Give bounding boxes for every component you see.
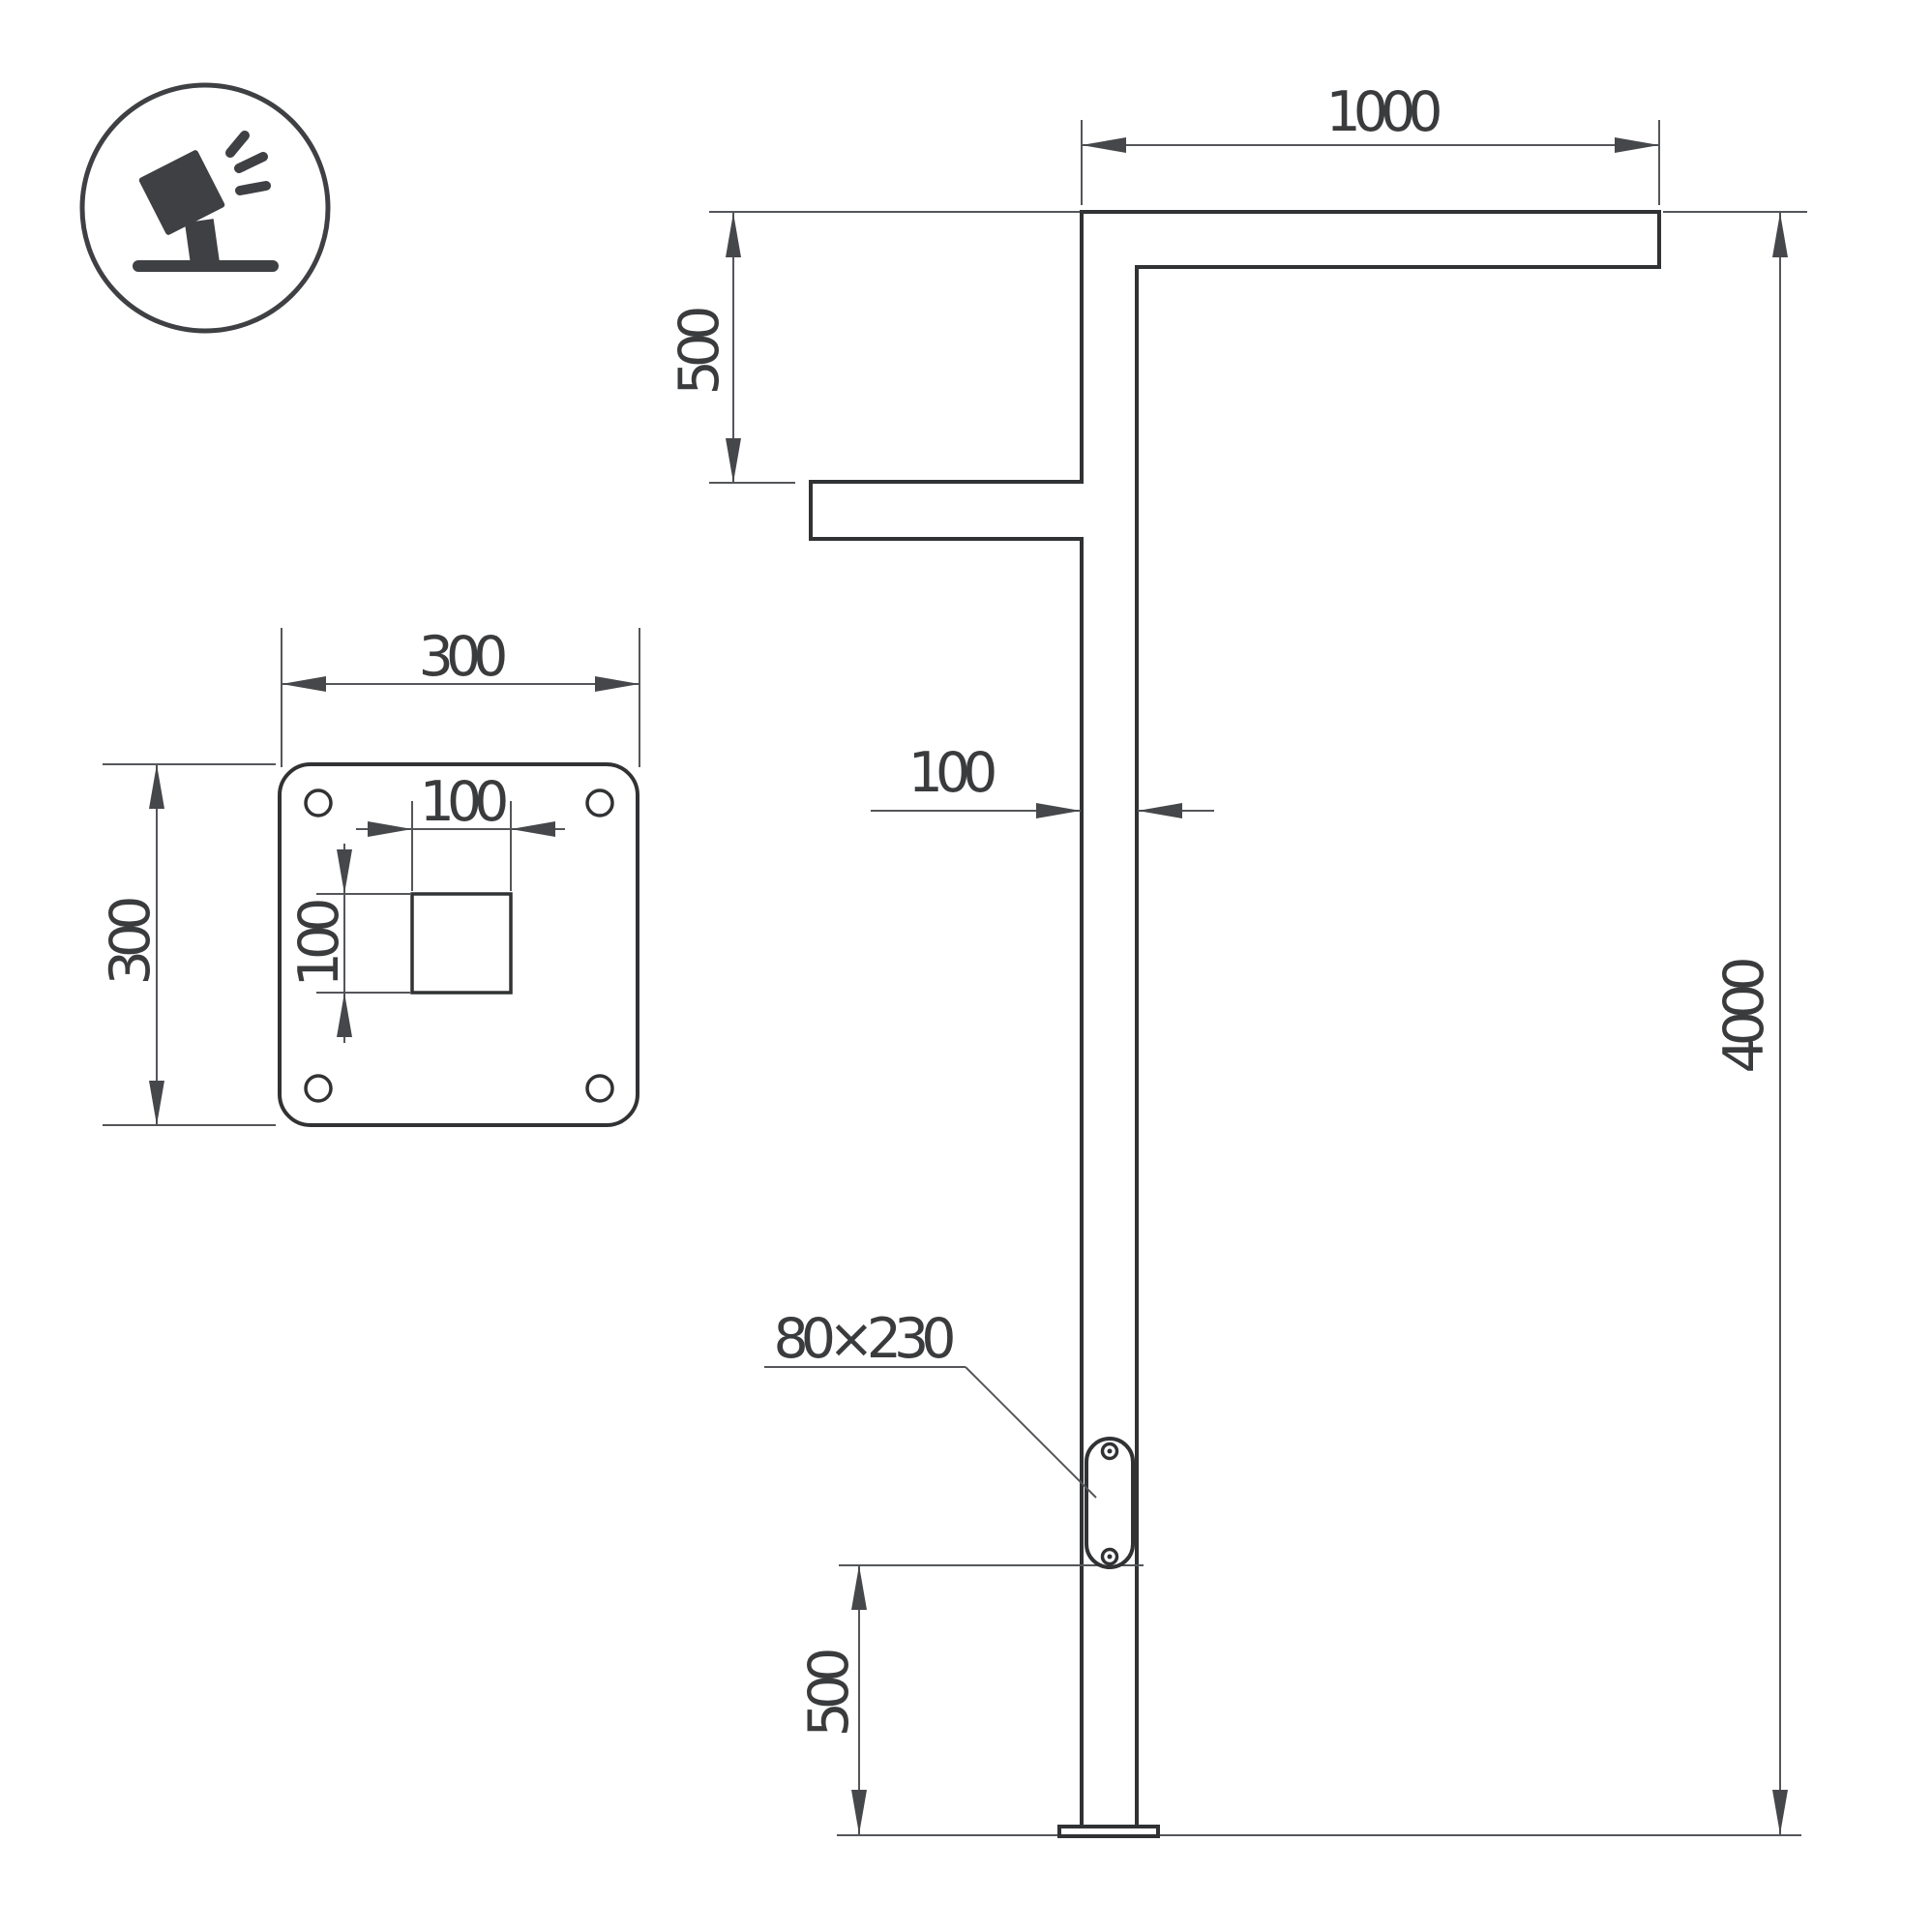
access-door	[1086, 1439, 1133, 1567]
door-size-leader: 80×230	[764, 1307, 1096, 1498]
base-plate-detail: 300 300 100	[99, 625, 639, 1125]
dim-plate-width: 300	[282, 625, 639, 767]
bolt-hole	[587, 790, 612, 816]
dim-plate-height: 300	[99, 764, 276, 1125]
pole-width-label: 100	[908, 741, 996, 805]
dim-pole-width: 100	[871, 741, 1214, 818]
plate-height-label: 300	[99, 899, 163, 986]
door-screw-dot	[1108, 1449, 1113, 1454]
arm-length-label: 1000	[1325, 80, 1440, 144]
door-height-label: 500	[797, 1650, 861, 1738]
floodlight-base	[133, 260, 279, 272]
floodlight-icon	[82, 85, 328, 331]
dim-arm-drop: 500	[668, 212, 1080, 483]
door-screw-dot	[1108, 1555, 1113, 1560]
bolt-hole	[306, 1076, 331, 1101]
technical-drawing: 300 300 100	[0, 0, 1932, 1932]
hole-height-label: 100	[287, 901, 351, 988]
center-square-hole	[412, 894, 511, 993]
pole-outline	[811, 212, 1659, 1830]
light-ray-icon	[240, 186, 266, 191]
pole-elevation: 1000 500 100 4000	[668, 80, 1807, 1836]
plate-width-label: 300	[419, 625, 506, 689]
arm-drop-label: 500	[668, 309, 731, 396]
hole-width-label: 100	[420, 770, 507, 834]
dim-pole-height: 4000	[1663, 212, 1807, 1834]
pole-height-label: 4000	[1712, 960, 1776, 1074]
dim-arm-length: 1000	[1082, 80, 1659, 205]
bolt-hole	[587, 1076, 612, 1101]
base-flange	[1059, 1827, 1158, 1836]
door-size-label: 80×230	[773, 1307, 953, 1371]
bolt-hole	[306, 790, 331, 816]
